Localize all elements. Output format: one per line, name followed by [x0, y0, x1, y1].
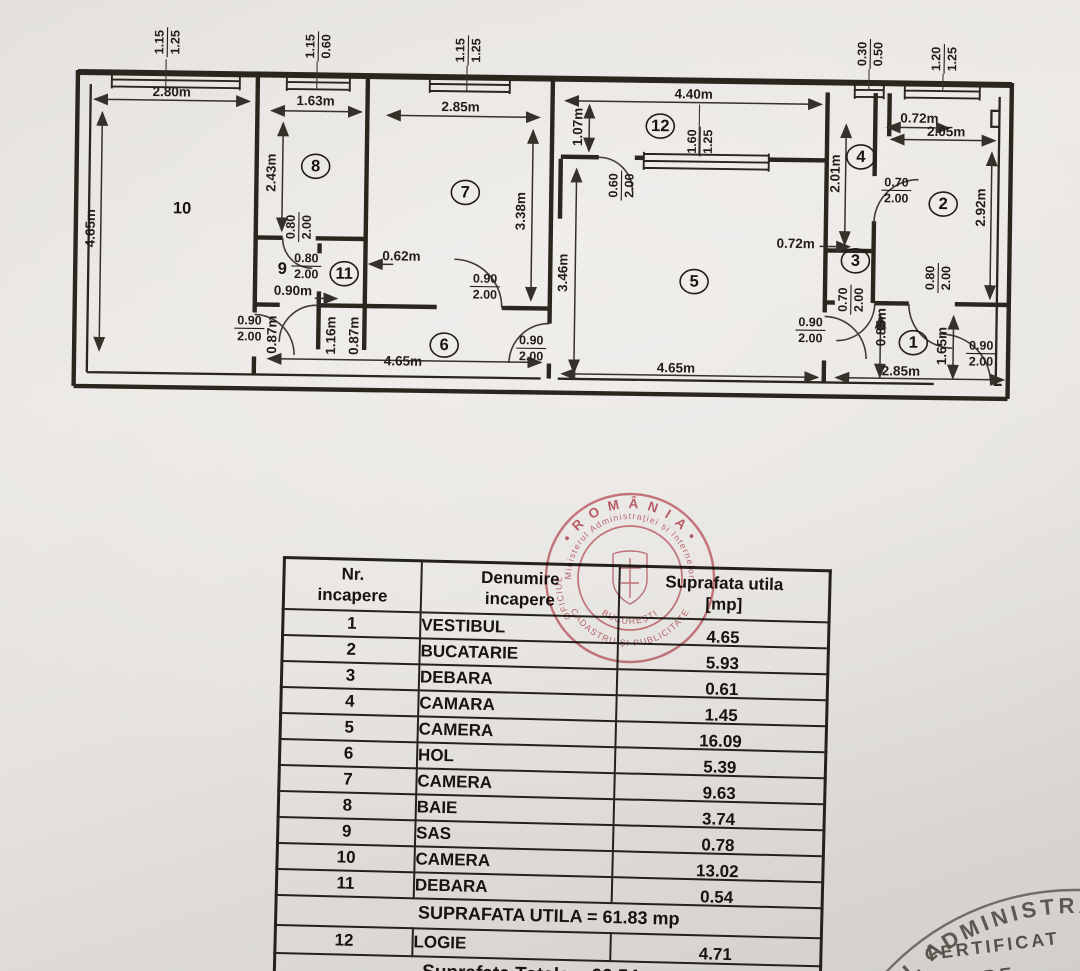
header-suprafata-line2: [mp] [705, 595, 742, 615]
size-pair-label: 1.150.60 [303, 31, 333, 61]
dimension-label: 0.87m [264, 315, 280, 353]
room-number: 6 [439, 336, 448, 354]
stamp-certificat-text: CERTIFICAT [924, 928, 1061, 964]
svg-text:1.20: 1.20 [929, 47, 943, 72]
size-pair-label: 0.802.00 [923, 263, 953, 293]
size-pair-label: 0.902.00 [795, 315, 825, 345]
dimension-label: 1.07m [570, 108, 586, 146]
size-pair-label: 1.151.25 [453, 35, 483, 65]
stamp-country-text: • R O M Â N I A • [559, 496, 700, 544]
svg-text:2.00: 2.00 [939, 266, 953, 291]
size-pair-label: 0.902.00 [516, 333, 546, 363]
svg-text:1.25: 1.25 [168, 30, 182, 55]
room-number-cell: 12 [275, 924, 413, 955]
dimension-label: 3.46m [555, 254, 571, 292]
svg-text:0.80: 0.80 [294, 251, 319, 265]
room-number-cell: 8 [278, 790, 416, 819]
header-nr-line2: incapere [317, 585, 387, 606]
floorplan-drawing: 2.80m4.65m1.63m2.43m2.85m3.38m4.40m1.07m… [0, 0, 1080, 454]
room-number-cell: 9 [277, 816, 415, 845]
svg-text:2.00: 2.00 [884, 191, 909, 205]
svg-text:0.90: 0.90 [798, 315, 823, 329]
svg-text:1.15: 1.15 [152, 30, 166, 55]
room-number-cell: 6 [279, 738, 417, 767]
dimension-label: 2.85m [441, 99, 479, 115]
dimension-label: 4.65m [83, 209, 99, 247]
size-pair-label: 1.601.25 [685, 126, 715, 156]
header-nr: Nr. incapere [283, 558, 422, 612]
svg-text:0.90: 0.90 [237, 313, 262, 327]
dimension-label: 2.01m [827, 154, 843, 192]
window-symbols [111, 72, 980, 174]
svg-text:1.15: 1.15 [303, 34, 317, 59]
size-pair-label: 0.802.00 [291, 251, 321, 281]
svg-text:2.00: 2.00 [622, 173, 636, 198]
interior-walls [254, 74, 1012, 384]
dimension-label: 0.87m [346, 317, 362, 355]
dimension-label: 1.63m [296, 93, 334, 109]
svg-text:1.25: 1.25 [469, 38, 483, 63]
size-pair-label: 0.702.00 [881, 175, 911, 205]
room-number-cell: 2 [282, 635, 420, 664]
dimension-label: 3.38m [513, 192, 529, 230]
header-suprafata: Suprafata utila [mp] [618, 566, 830, 622]
room-number: 12 [651, 117, 670, 135]
black-corner-stamp: UL ADMINISTRAT CERTIFICAT DE [855, 855, 1080, 971]
header-denumire-line1: Denumire [481, 568, 560, 589]
dimension-label: 4.40m [674, 86, 712, 102]
room-number: 9 [278, 260, 287, 278]
svg-text:1.15: 1.15 [453, 38, 467, 63]
size-pair-label: 0.902.00 [234, 313, 264, 343]
svg-text:0.70: 0.70 [884, 175, 909, 189]
svg-text:0.50: 0.50 [871, 42, 885, 67]
size-pair-label: 1.151.25 [152, 27, 182, 57]
svg-text:2.00: 2.00 [798, 331, 823, 345]
room-number: 8 [311, 157, 320, 175]
room-number-cell: 4 [281, 686, 419, 715]
room-number: 2 [938, 195, 947, 213]
svg-text:0.60: 0.60 [319, 34, 333, 59]
room-number-cell: 1 [283, 609, 421, 638]
svg-text:2.00: 2.00 [294, 267, 319, 281]
room-area-cell: 4.71 [610, 938, 821, 971]
svg-text:0.90: 0.90 [473, 272, 498, 286]
room-number-cell: 5 [280, 712, 418, 741]
header-nr-line1: Nr. [341, 564, 364, 584]
dimension-label: 1.65m [934, 327, 950, 365]
svg-text:• R O M Â N I A •: • R O M Â N I A • [559, 496, 700, 544]
room-number: 10 [173, 199, 192, 217]
svg-text:0.80: 0.80 [284, 215, 298, 240]
svg-text:2.00: 2.00 [852, 288, 866, 313]
svg-text:2.00: 2.00 [969, 354, 994, 368]
svg-text:0.90: 0.90 [519, 333, 544, 347]
room-number: 5 [689, 273, 698, 291]
svg-text:0.30: 0.30 [855, 42, 869, 67]
svg-text:0.90: 0.90 [969, 338, 994, 352]
dimension-label: 4.65m [384, 353, 422, 369]
svg-text:2.00: 2.00 [300, 215, 314, 240]
room-number-cell: 3 [281, 661, 419, 690]
header-denumire-line2: incapere [485, 589, 555, 610]
room-number: 11 [335, 265, 353, 283]
header-denumire: Denumire incapere [421, 561, 620, 617]
size-pair-label: 1.201.25 [929, 44, 959, 74]
svg-text:1.25: 1.25 [701, 129, 715, 154]
rooms-table: Nr. incapere Denumire incapere Suprafata… [272, 556, 832, 971]
dimension-label: 2.85m [882, 363, 920, 379]
room-number: 3 [851, 252, 860, 270]
dimension-label: 2.80m [152, 84, 190, 100]
room-number: 1 [909, 334, 918, 352]
size-pair-label: 0.602.00 [606, 170, 636, 200]
dimension-label: 0.90m [274, 283, 312, 299]
svg-text:0.70: 0.70 [836, 287, 850, 312]
svg-text:UL ADMINISTRAT: UL ADMINISTRAT [883, 893, 1080, 971]
room-number-cell: 10 [277, 842, 415, 871]
dimension-label: 2.92m [973, 188, 989, 226]
svg-text:2.00: 2.00 [473, 288, 498, 302]
dimension-label: 1.16m [323, 316, 339, 354]
svg-text:2.00: 2.00 [519, 349, 544, 363]
svg-text:1.25: 1.25 [945, 47, 959, 72]
dimension-label: 0.85m [873, 308, 889, 346]
stamp-border-arc [855, 890, 1080, 971]
size-pair-label: 0.902.00 [966, 338, 996, 368]
svg-text:1.60: 1.60 [685, 129, 699, 154]
dimension-label: 2.43m [263, 153, 279, 191]
size-pair-label: 0.300.50 [855, 39, 885, 69]
size-pair-label: 0.702.00 [836, 285, 866, 315]
svg-text:0.80: 0.80 [923, 266, 937, 291]
dimension-label: 4.65m [657, 360, 695, 376]
room-area-cell: 0.54 [611, 882, 822, 913]
dimension-label: 0.62m [382, 248, 420, 264]
header-suprafata-line1: Suprafata utila [665, 572, 784, 594]
scanned-floorplan-document: 2.80m4.65m1.63m2.43m2.85m3.38m4.40m1.07m… [0, 0, 1080, 971]
svg-text:2.00: 2.00 [237, 329, 262, 343]
svg-text:0.60: 0.60 [606, 173, 620, 198]
room-number: 4 [856, 148, 866, 166]
dimension-label: 2.05m [927, 124, 965, 140]
room-number: 7 [461, 183, 470, 201]
stamp-de-text: DE [983, 963, 1016, 971]
dimension-label: 0.72m [776, 236, 814, 252]
size-pair-label: 0.902.00 [470, 271, 500, 301]
size-pair-label: 0.802.00 [284, 212, 314, 242]
room-number-cell: 11 [276, 868, 414, 897]
stamp-arc-text: UL ADMINISTRAT [883, 893, 1080, 971]
room-number-cell: 7 [279, 764, 417, 793]
